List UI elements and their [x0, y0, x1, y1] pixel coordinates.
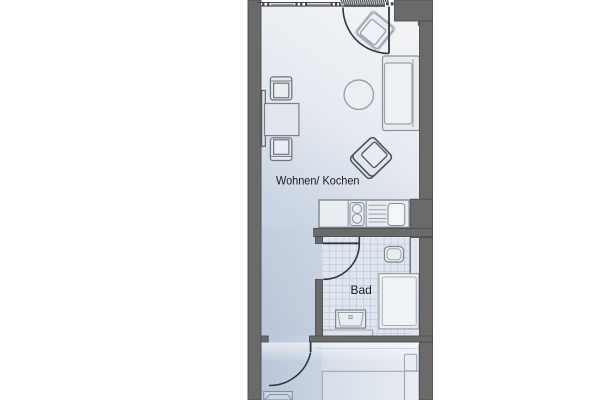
svg-text:Bad: Bad: [351, 283, 372, 297]
svg-text:Wohnen/ Kochen: Wohnen/ Kochen: [276, 174, 360, 188]
